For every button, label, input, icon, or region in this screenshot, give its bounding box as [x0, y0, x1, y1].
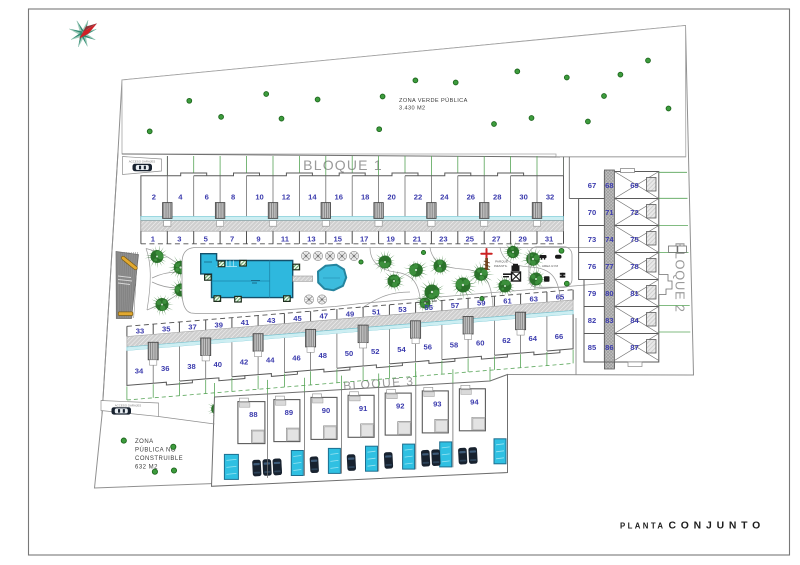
svg-text:87: 87 — [630, 343, 638, 352]
svg-text:14: 14 — [308, 193, 317, 202]
svg-text:23: 23 — [439, 234, 447, 243]
svg-text:81: 81 — [630, 289, 639, 298]
svg-text:85: 85 — [588, 343, 597, 352]
svg-text:ZONA: ZONA — [135, 439, 154, 445]
svg-text:AREA GYM: AREA GYM — [542, 264, 559, 268]
svg-text:20: 20 — [387, 193, 395, 202]
svg-text:24: 24 — [440, 193, 449, 202]
svg-text:65: 65 — [556, 292, 565, 301]
svg-text:51: 51 — [372, 307, 381, 316]
svg-text:45: 45 — [293, 314, 302, 323]
svg-text:BLOQUE 1: BLOQUE 1 — [303, 157, 383, 173]
svg-text:56: 56 — [424, 343, 432, 352]
svg-text:16: 16 — [335, 193, 343, 202]
svg-text:CONJUNTO: CONJUNTO — [669, 521, 766, 532]
svg-text:69: 69 — [630, 181, 638, 190]
svg-text:83: 83 — [605, 316, 613, 325]
svg-text:79: 79 — [588, 289, 596, 298]
svg-text:66: 66 — [555, 332, 563, 341]
svg-text:55: 55 — [425, 303, 434, 312]
svg-text:68: 68 — [605, 181, 613, 190]
svg-text:34: 34 — [135, 366, 144, 375]
svg-text:7: 7 — [230, 234, 234, 243]
svg-text:13: 13 — [307, 234, 315, 243]
svg-text:26: 26 — [467, 193, 475, 202]
svg-text:63: 63 — [530, 294, 538, 303]
svg-text:27: 27 — [492, 234, 500, 243]
svg-text:48: 48 — [319, 351, 327, 360]
svg-text:75: 75 — [630, 235, 639, 244]
svg-text:67: 67 — [588, 181, 596, 190]
svg-text:8: 8 — [231, 193, 235, 202]
svg-text:53: 53 — [398, 305, 406, 314]
svg-text:36: 36 — [161, 364, 169, 373]
svg-text:6: 6 — [205, 193, 209, 202]
svg-text:ACCESO GARAJES: ACCESO GARAJES — [115, 404, 142, 408]
svg-text:54: 54 — [397, 345, 406, 354]
svg-text:10: 10 — [255, 193, 263, 202]
svg-text:ACCESO GARAJES: ACCESO GARAJES — [129, 160, 156, 164]
svg-text:76: 76 — [588, 262, 596, 271]
svg-text:21: 21 — [413, 234, 422, 243]
svg-text:3: 3 — [177, 234, 181, 243]
svg-text:37: 37 — [188, 322, 196, 331]
svg-text:94: 94 — [470, 397, 479, 406]
svg-text:25: 25 — [466, 234, 475, 243]
svg-text:32: 32 — [546, 193, 554, 202]
svg-text:BLOQUE 2: BLOQUE 2 — [673, 242, 688, 312]
svg-text:58: 58 — [450, 340, 458, 349]
svg-text:INFANTIL: INFANTIL — [494, 264, 508, 268]
svg-text:PLANTA: PLANTA — [620, 522, 665, 531]
svg-text:17: 17 — [360, 234, 368, 243]
svg-text:12: 12 — [282, 193, 290, 202]
svg-text:11: 11 — [281, 234, 290, 243]
svg-text:74: 74 — [605, 235, 614, 244]
svg-text:19: 19 — [386, 234, 394, 243]
svg-text:33: 33 — [136, 327, 144, 336]
svg-text:30: 30 — [519, 193, 527, 202]
svg-text:42: 42 — [240, 358, 248, 367]
svg-text:86: 86 — [605, 343, 613, 352]
svg-text:49: 49 — [346, 310, 354, 319]
svg-text:84: 84 — [630, 316, 639, 325]
svg-text:PARQUE: PARQUE — [495, 260, 508, 264]
svg-text:44: 44 — [266, 356, 275, 365]
svg-text:92: 92 — [396, 402, 404, 411]
svg-text:90: 90 — [322, 406, 330, 415]
svg-text:78: 78 — [630, 262, 638, 271]
svg-text:71: 71 — [605, 208, 614, 217]
svg-text:31: 31 — [545, 234, 554, 243]
svg-text:40: 40 — [214, 360, 222, 369]
svg-text:29: 29 — [518, 234, 526, 243]
svg-text:3.430 M2: 3.430 M2 — [399, 106, 426, 112]
svg-text:73: 73 — [588, 235, 596, 244]
svg-text:60: 60 — [476, 338, 484, 347]
svg-text:93: 93 — [433, 399, 441, 408]
svg-text:46: 46 — [292, 353, 300, 362]
svg-text:PÚBLICA NO: PÚBLICA NO — [135, 447, 176, 454]
svg-text:72: 72 — [630, 208, 638, 217]
svg-text:64: 64 — [529, 334, 538, 343]
svg-text:43: 43 — [267, 316, 275, 325]
svg-text:77: 77 — [605, 262, 613, 271]
svg-text:CONSTRUIBLE: CONSTRUIBLE — [135, 456, 183, 462]
svg-text:52: 52 — [371, 347, 379, 356]
svg-text:91: 91 — [359, 404, 368, 413]
svg-text:82: 82 — [588, 316, 596, 325]
svg-text:38: 38 — [187, 362, 195, 371]
svg-text:89: 89 — [285, 408, 293, 417]
svg-text:35: 35 — [162, 325, 171, 334]
svg-text:50: 50 — [345, 349, 353, 358]
svg-text:2: 2 — [152, 193, 156, 202]
svg-text:47: 47 — [320, 312, 328, 321]
svg-text:88: 88 — [249, 410, 257, 419]
svg-text:9: 9 — [256, 234, 260, 243]
svg-text:70: 70 — [588, 208, 596, 217]
svg-text:57: 57 — [451, 301, 459, 310]
svg-text:ZONA VERDE PÚBLICA: ZONA VERDE PÚBLICA — [399, 97, 468, 104]
svg-text:39: 39 — [215, 320, 223, 329]
svg-text:59: 59 — [477, 299, 485, 308]
svg-text:62: 62 — [502, 336, 510, 345]
svg-text:18: 18 — [361, 193, 369, 202]
svg-text:22: 22 — [414, 193, 422, 202]
svg-text:61: 61 — [503, 297, 512, 306]
svg-text:28: 28 — [493, 193, 501, 202]
svg-text:80: 80 — [605, 289, 613, 298]
svg-text:15: 15 — [334, 234, 343, 243]
svg-text:41: 41 — [241, 318, 250, 327]
